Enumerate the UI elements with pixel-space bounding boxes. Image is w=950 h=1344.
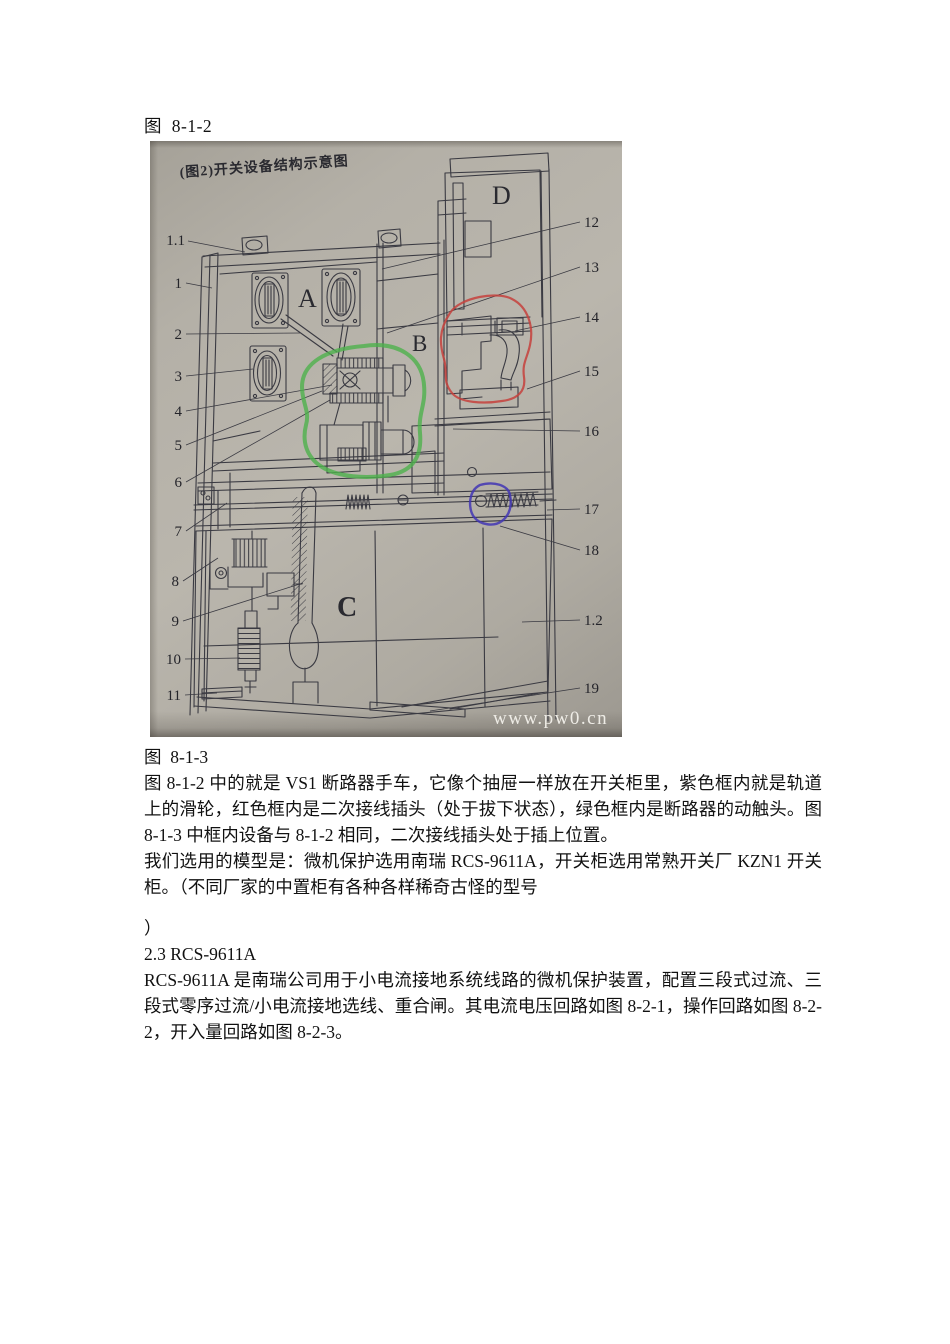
- switchgear-structure-diagram: (图2)开关设备结构示意图: [150, 141, 622, 737]
- callout-1: 1: [175, 276, 183, 292]
- section-heading-2-3: 2.3 RCS-9611A: [144, 941, 822, 967]
- paragraph-model-selection: 我们选用的模型是：微机保护选用南瑞 RCS-9611A，开关柜选用常熟开关厂 K…: [144, 848, 822, 900]
- callout-4: 4: [175, 404, 183, 420]
- red-annotation-circle: [441, 295, 531, 402]
- callout-3: 3: [175, 369, 183, 385]
- section-letter-a: A: [298, 284, 317, 313]
- paragraph-figure-description: 图 8-1-2 中的就是 VS1 断路器手车，它像个抽屉一样放在开关柜里，紫色框…: [144, 770, 822, 848]
- section-letter-d: D: [492, 181, 511, 210]
- callout-15: 15: [584, 364, 599, 380]
- paragraph-rcs9611a-description: RCS-9611A 是南瑞公司用于小电流接地系统线路的微机保护装置，配置三段式过…: [144, 967, 822, 1045]
- figure-8-1-3-caption: 图 8-1-3: [144, 744, 822, 770]
- section-letter-c: C: [337, 592, 357, 623]
- figure-8-1-2-photo: (图2)开关设备结构示意图: [150, 141, 622, 737]
- callouts-right: 12 13 14 15 16 17 18 1.2 19: [584, 215, 603, 697]
- callout-5: 5: [175, 438, 183, 454]
- callout-14: 14: [584, 310, 600, 326]
- callout-1-1: 1.1: [166, 233, 185, 249]
- callout-9: 9: [172, 614, 180, 630]
- callout-12: 12: [584, 215, 599, 231]
- callout-1-2: 1.2: [584, 613, 603, 629]
- watermark-text: www.pw0.cn: [493, 708, 608, 729]
- diagram-title: (图2)开关设备结构示意图: [179, 152, 349, 181]
- cabinet-line-art: [190, 153, 556, 721]
- callout-7: 7: [175, 524, 183, 540]
- callout-13: 13: [584, 260, 599, 276]
- callout-2: 2: [175, 327, 183, 343]
- body-text-column: 图 8-1-3 图 8-1-2 中的就是 VS1 断路器手车，它像个抽屉一样放在…: [144, 744, 822, 1045]
- callout-19: 19: [584, 681, 599, 697]
- callout-10: 10: [166, 652, 181, 668]
- callouts-left: 1.1 1 2 3 4 5 6 7 8 9 10 11: [166, 233, 185, 704]
- callout-6: 6: [175, 475, 183, 491]
- callout-16: 16: [584, 424, 600, 440]
- section-letter-b: B: [412, 331, 427, 356]
- callout-11: 11: [167, 688, 181, 704]
- blank-line: [144, 900, 822, 915]
- callout-18: 18: [584, 543, 599, 559]
- figure-8-1-2-caption: 图 8-1-2: [144, 115, 212, 137]
- closing-parenthesis: ）: [144, 915, 822, 941]
- callout-8: 8: [172, 574, 180, 590]
- callout-17: 17: [584, 502, 600, 518]
